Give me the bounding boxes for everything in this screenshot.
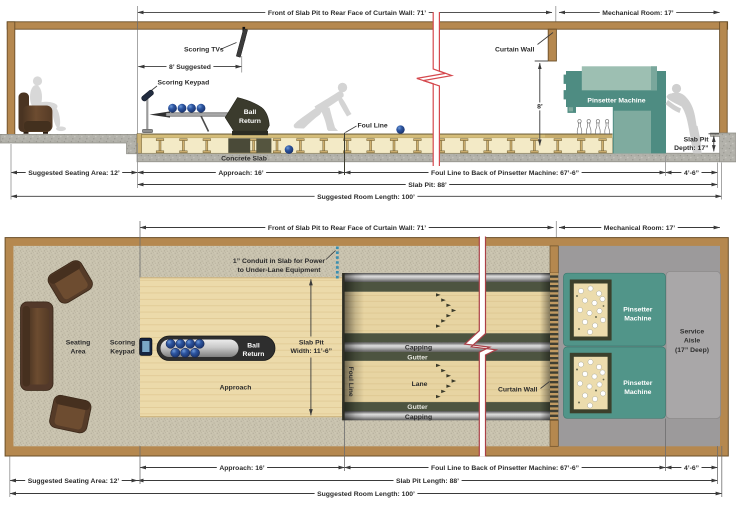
svg-text:Machine: Machine	[624, 316, 651, 323]
svg-text:1” Conduit in Slab for Power: 1” Conduit in Slab for Power	[233, 258, 325, 265]
svg-text:Return: Return	[239, 118, 261, 125]
svg-text:Slab Pit: Slab Pit	[684, 137, 710, 144]
svg-text:to Under-Lane Equipment: to Under-Lane Equipment	[237, 267, 321, 274]
svg-text:8’: 8’	[537, 104, 543, 111]
svg-text:Scoring Keypad: Scoring Keypad	[158, 79, 210, 86]
svg-text:Machine: Machine	[624, 389, 651, 396]
svg-text:Pinsetter: Pinsetter	[623, 380, 652, 387]
svg-text:4’-6”: 4’-6”	[684, 465, 699, 472]
svg-text:8’ Suggested: 8’ Suggested	[169, 64, 211, 71]
svg-text:4’-6”: 4’-6”	[684, 170, 699, 177]
svg-text:Capping: Capping	[405, 345, 432, 352]
svg-text:Curtain Wall: Curtain Wall	[498, 387, 538, 394]
svg-text:Scoring TVs: Scoring TVs	[184, 47, 224, 54]
svg-text:Suggested Room Length: 100’: Suggested Room Length: 100’	[317, 491, 415, 498]
svg-text:Scoring: Scoring	[110, 340, 135, 347]
svg-text:Aisle: Aisle	[684, 338, 700, 345]
svg-text:(17” Deep): (17” Deep)	[675, 347, 709, 354]
svg-text:Concrete Slab: Concrete Slab	[221, 155, 267, 162]
svg-text:Suggested Room Length: 100’: Suggested Room Length: 100’	[317, 194, 415, 201]
svg-text:Suggested Seating Area: 12’: Suggested Seating Area: 12’	[28, 170, 120, 177]
svg-text:Mechanical Room: 17’: Mechanical Room: 17’	[602, 10, 673, 17]
svg-text:Keypad: Keypad	[110, 349, 135, 356]
svg-text:Slab Pit: Slab Pit	[299, 340, 325, 347]
svg-text:Approach: 16’: Approach: 16’	[218, 170, 263, 177]
svg-text:Slab Pit: 88’: Slab Pit: 88’	[408, 182, 447, 189]
svg-text:Front of Slab Pit to Rear Face: Front of Slab Pit to Rear Face of Curtai…	[268, 225, 426, 232]
svg-text:Lane: Lane	[412, 381, 428, 388]
svg-text:Ball: Ball	[247, 342, 260, 349]
svg-text:Pinsetter Machine: Pinsetter Machine	[587, 98, 645, 105]
svg-text:Foul Line to Back of Pinsetter: Foul Line to Back of Pinsetter Machine: …	[431, 170, 579, 177]
svg-text:Foul Line to Back of Pinsetter: Foul Line to Back of Pinsetter Machine: …	[431, 465, 579, 472]
svg-text:Service: Service	[680, 329, 704, 336]
svg-text:Return: Return	[243, 351, 265, 358]
svg-text:Capping: Capping	[405, 414, 432, 421]
svg-text:Gutter: Gutter	[407, 404, 428, 411]
svg-text:Foul Line: Foul Line	[358, 122, 388, 129]
svg-text:Suggested Seating Area: 12’: Suggested Seating Area: 12’	[28, 478, 120, 485]
svg-text:Curtain Wall: Curtain Wall	[495, 46, 535, 53]
svg-text:Width: 11’-6”: Width: 11’-6”	[291, 348, 332, 355]
svg-text:Area: Area	[70, 349, 85, 356]
svg-text:Gutter: Gutter	[407, 355, 428, 362]
svg-text:Pinsetter: Pinsetter	[623, 307, 652, 314]
svg-text:Seating: Seating	[66, 340, 91, 347]
svg-text:Mechanical Room: 17’: Mechanical Room: 17’	[604, 225, 675, 232]
svg-text:Front of Slab Pit to Rear Face: Front of Slab Pit to Rear Face of Curtai…	[268, 10, 426, 17]
svg-text:Depth: 17”: Depth: 17”	[674, 145, 708, 152]
svg-text:Approach: Approach	[220, 385, 252, 392]
svg-text:Slab Pit Length: 88’: Slab Pit Length: 88’	[396, 478, 459, 485]
svg-text:Ball: Ball	[244, 109, 257, 116]
svg-text:Approach: 16’: Approach: 16’	[219, 465, 264, 472]
svg-text:Foul Line: Foul Line	[347, 367, 354, 397]
